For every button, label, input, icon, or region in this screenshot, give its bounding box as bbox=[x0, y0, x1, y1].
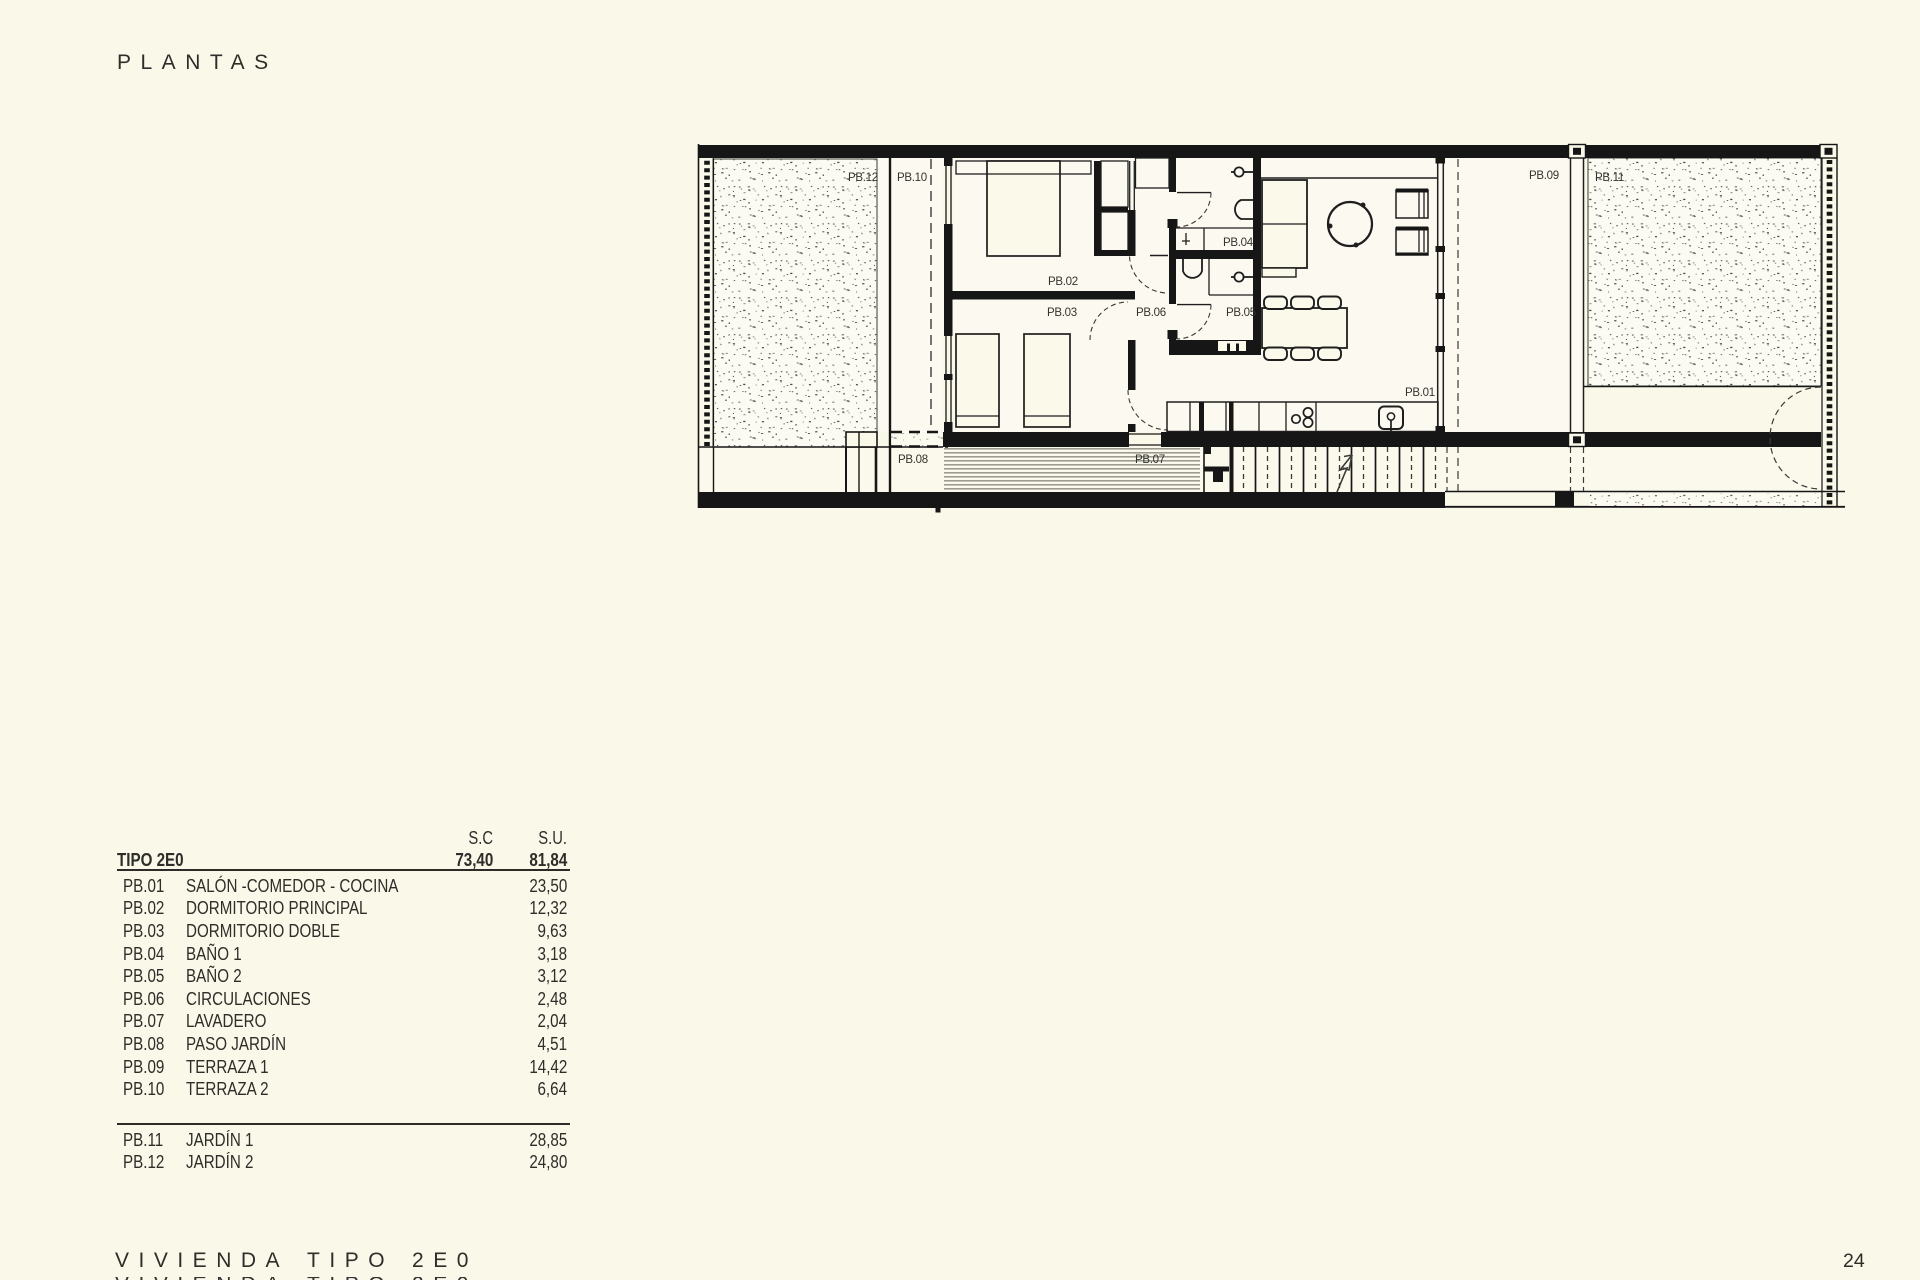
svg-text:PB.11: PB.11 bbox=[1595, 172, 1624, 184]
svg-text:PB.10: PB.10 bbox=[897, 172, 927, 184]
svg-text:PB.07: PB.07 bbox=[1135, 454, 1165, 466]
svg-text:PB.12: PB.12 bbox=[848, 172, 878, 184]
svg-text:PB.02: PB.02 bbox=[1048, 276, 1078, 288]
svg-text:PB.09: PB.09 bbox=[1529, 170, 1559, 182]
svg-text:PB.03: PB.03 bbox=[1047, 307, 1077, 319]
svg-text:PB.08: PB.08 bbox=[898, 454, 928, 466]
svg-text:PB.01: PB.01 bbox=[1405, 387, 1435, 399]
svg-text:PB.04: PB.04 bbox=[1223, 237, 1254, 249]
svg-text:PB.06: PB.06 bbox=[1136, 307, 1166, 319]
svg-text:PB.05: PB.05 bbox=[1226, 307, 1256, 319]
